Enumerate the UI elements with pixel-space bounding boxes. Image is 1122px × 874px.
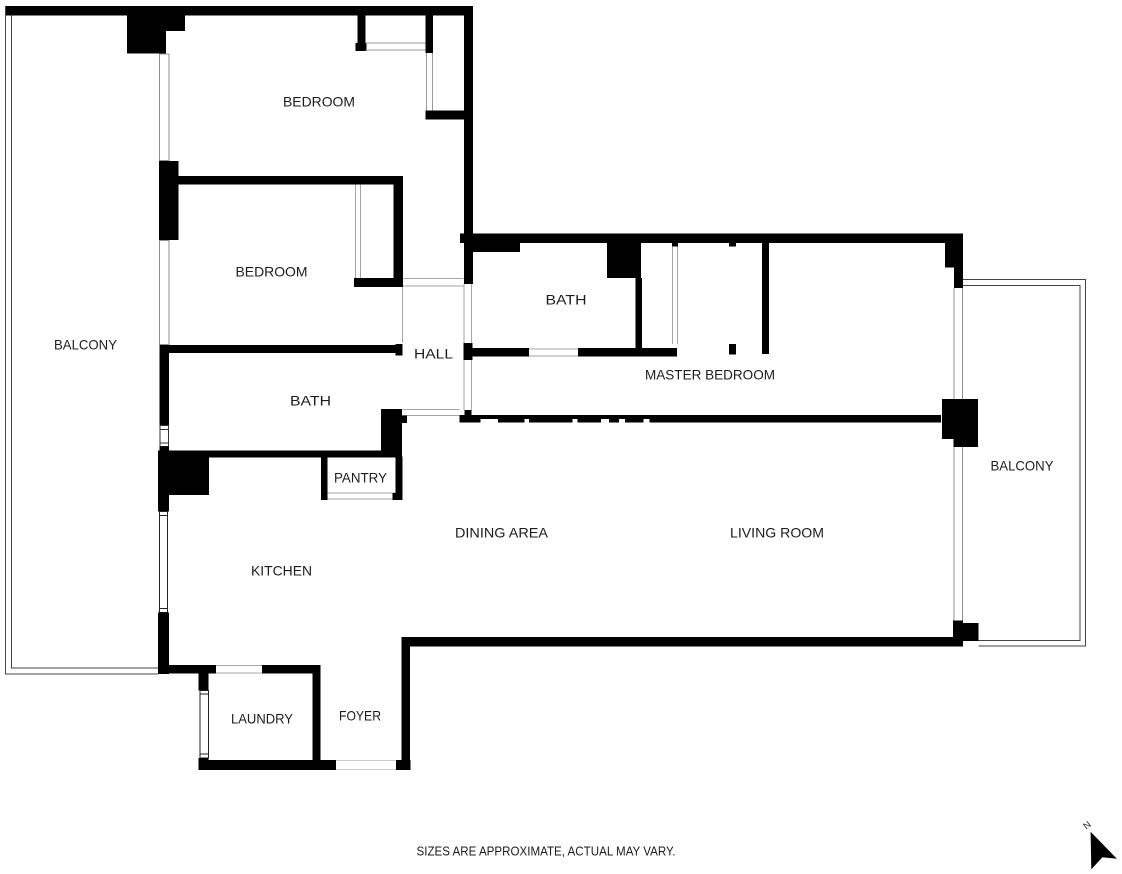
svg-text:DINING AREA: DINING AREA [455, 525, 549, 541]
svg-text:BEDROOM: BEDROOM [236, 264, 308, 280]
svg-text:BATH: BATH [546, 292, 587, 308]
svg-text:N: N [1081, 819, 1093, 832]
svg-text:BALCONY: BALCONY [54, 337, 118, 353]
svg-text:BALCONY: BALCONY [991, 458, 1055, 474]
svg-text:SIZES ARE APPROXIMATE, ACTUAL: SIZES ARE APPROXIMATE, ACTUAL MAY VARY. [417, 845, 676, 859]
svg-text:LAUNDRY: LAUNDRY [231, 711, 294, 727]
svg-text:KITCHEN: KITCHEN [251, 563, 312, 579]
svg-text:FOYER: FOYER [339, 708, 381, 724]
svg-text:MASTER BEDROOM: MASTER BEDROOM [645, 367, 775, 383]
svg-text:BEDROOM: BEDROOM [283, 94, 355, 110]
svg-text:BATH: BATH [290, 393, 331, 409]
svg-text:PANTRY: PANTRY [334, 470, 388, 486]
svg-text:HALL: HALL [414, 346, 453, 362]
svg-text:LIVING ROOM: LIVING ROOM [730, 525, 824, 541]
